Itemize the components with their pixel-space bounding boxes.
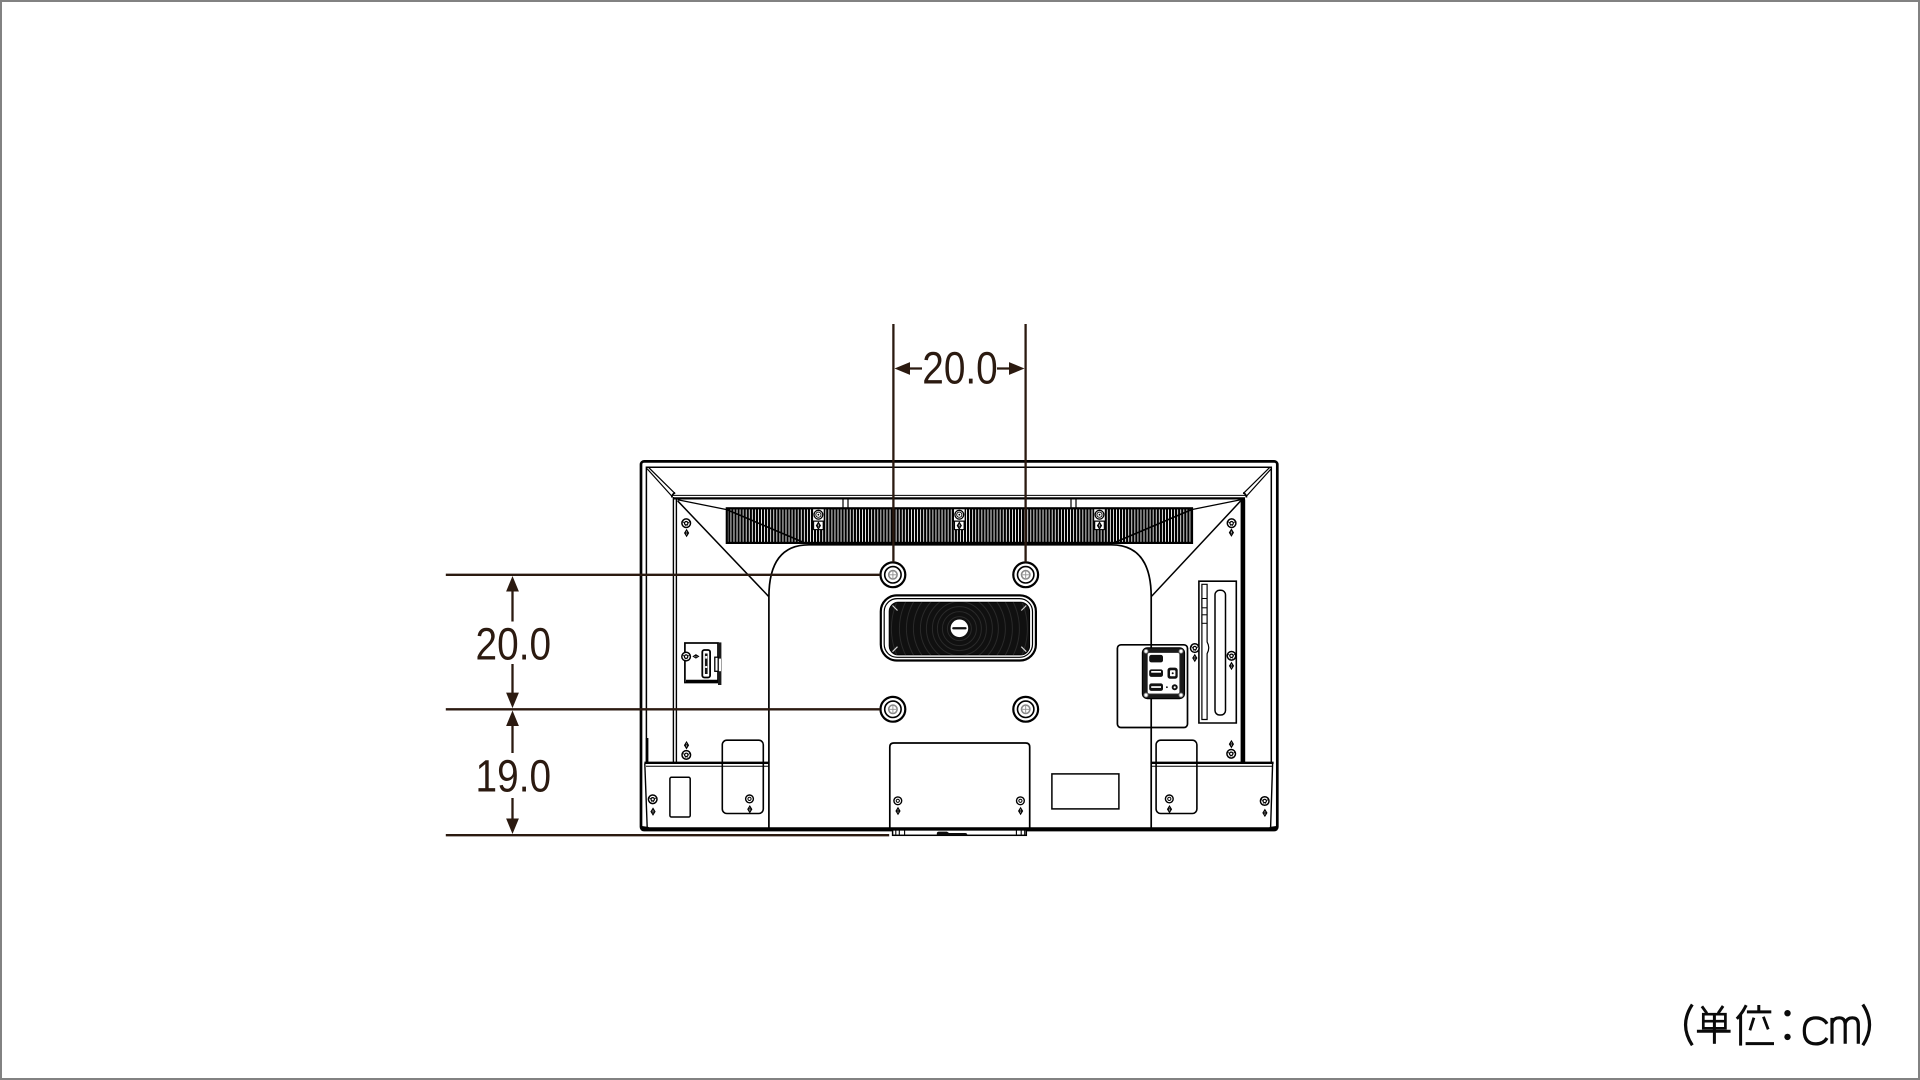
svg-text:20.0: 20.0 (476, 619, 552, 670)
svg-text:20.0: 20.0 (922, 343, 998, 394)
svg-text:19.0: 19.0 (476, 751, 552, 802)
